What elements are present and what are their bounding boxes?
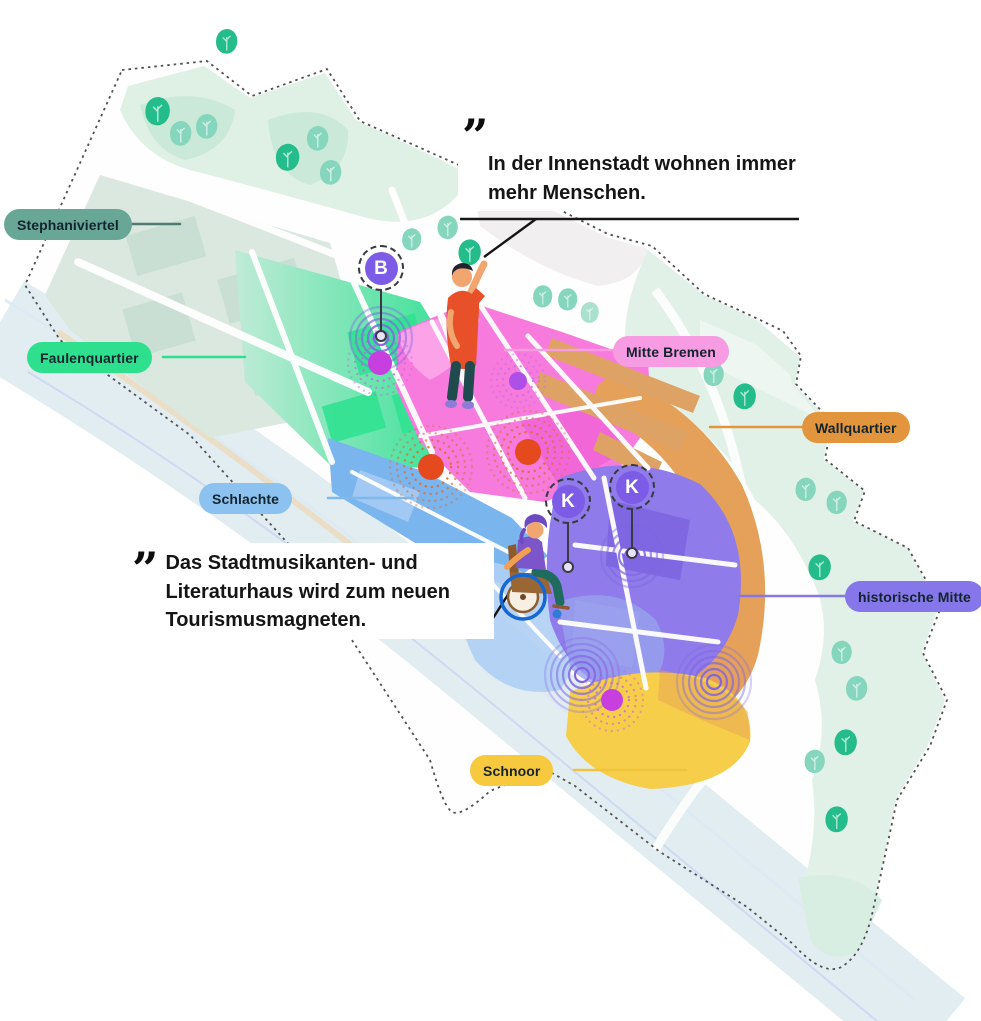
quote-line: mehr Menschen. (488, 179, 814, 208)
tree-icon (827, 491, 847, 514)
badge-marker-K1[interactable]: K (545, 478, 591, 524)
quote-line: Tourismusmagneten. (165, 606, 449, 635)
tree-icon (307, 126, 328, 151)
district-label-mitte-bremen[interactable]: Mitte Bremen (613, 336, 729, 367)
tree-icon (808, 554, 830, 580)
tree-icon (796, 478, 816, 501)
quote-icon: ” (462, 124, 814, 150)
badge-letter: K (552, 485, 585, 518)
tree-icon (145, 97, 170, 125)
tree-icon (825, 806, 847, 832)
quote-icon: ” (132, 557, 158, 583)
tree-icon (216, 29, 237, 54)
district-label-schnoor[interactable]: Schnoor (470, 755, 553, 786)
bremen-innenstadt-map-infographic: Stephaniviertel Faulenquartier Schlachte… (0, 0, 981, 1021)
quote-line: In der Innenstadt wohnen immer (488, 150, 814, 179)
tree-icon (320, 160, 341, 185)
tree-icon (834, 729, 856, 755)
district-label-wallquartier[interactable]: Wallquartier (802, 412, 910, 443)
district-label-faulenquartier[interactable]: Faulenquartier (27, 342, 152, 373)
tree-icon (558, 288, 577, 310)
quote-line: Das Stadtmusikanten- und (165, 549, 449, 578)
tree-icon (805, 750, 825, 773)
tree-icon (438, 216, 458, 239)
tree-icon (458, 239, 480, 265)
badge-letter: K (616, 471, 649, 504)
tree-icon (196, 114, 217, 139)
tree-icon (170, 121, 191, 146)
district-label-historische-mitte[interactable]: historische Mitte (845, 581, 981, 612)
tree-icon (276, 144, 299, 171)
quote-innenstadt-wohnen: ” In der Innenstadt wohnen immer mehr Me… (458, 120, 820, 211)
badge-letter: B (365, 252, 398, 285)
quote-stadtmusikantenhaus: ” Das Stadtmusikanten- und Literaturhaus… (126, 543, 494, 639)
district-label-stephaniviertel[interactable]: Stephaniviertel (4, 209, 132, 240)
badge-marker-K2[interactable]: K (609, 464, 655, 510)
tree-icon (846, 676, 867, 701)
quote-line: Literaturhaus wird zum neuen (165, 578, 449, 607)
badge-marker-B[interactable]: B (358, 245, 404, 291)
tree-icon (533, 285, 552, 307)
tree-icon (832, 641, 852, 664)
district-label-schlachte[interactable]: Schlachte (199, 483, 292, 514)
tree-icon (402, 228, 421, 250)
tree-icon (581, 302, 599, 323)
tree-icon (733, 383, 755, 409)
